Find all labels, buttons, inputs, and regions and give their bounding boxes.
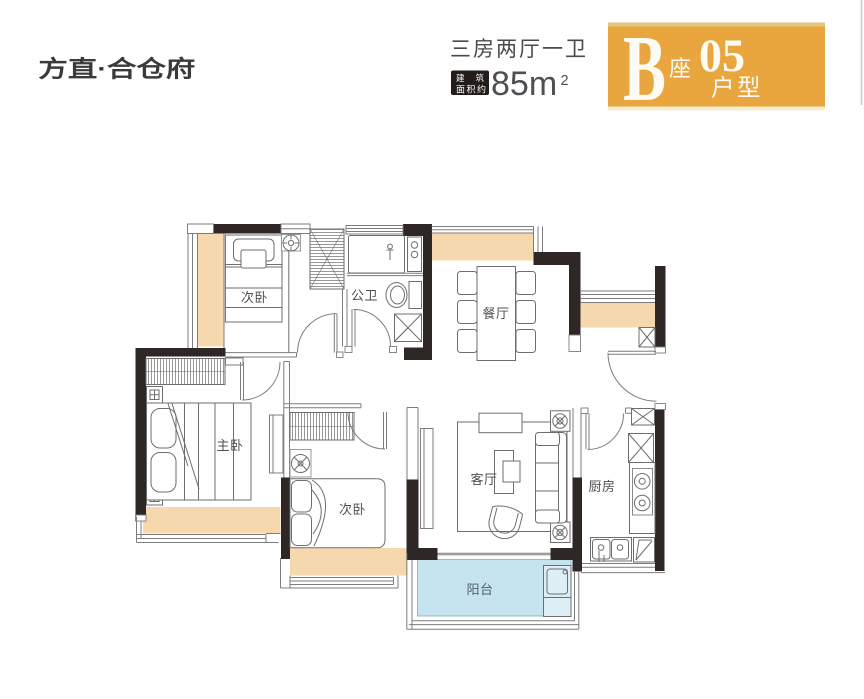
svg-text:户型: 户型 <box>711 75 763 101</box>
svg-text:次卧: 次卧 <box>339 502 366 517</box>
svg-text:建筑: 建筑 <box>456 73 495 83</box>
svg-text:阳台: 阳台 <box>467 582 494 597</box>
svg-text:2: 2 <box>561 73 569 89</box>
svg-text:客厅: 客厅 <box>471 472 498 487</box>
svg-text:85m: 85m <box>491 65 557 103</box>
svg-text:面积约: 面积约 <box>456 84 488 95</box>
svg-text:方直·合仓府: 方直·合仓府 <box>38 56 195 82</box>
svg-text:次卧: 次卧 <box>241 290 268 305</box>
svg-text:三房两厅一卫: 三房两厅一卫 <box>450 38 588 61</box>
svg-text:公卫: 公卫 <box>351 288 378 303</box>
svg-text:座: 座 <box>669 56 691 81</box>
svg-text:厨房: 厨房 <box>589 479 616 494</box>
svg-text:主卧: 主卧 <box>217 438 244 453</box>
svg-text:餐厅: 餐厅 <box>483 306 510 321</box>
svg-text:B: B <box>623 17 666 121</box>
